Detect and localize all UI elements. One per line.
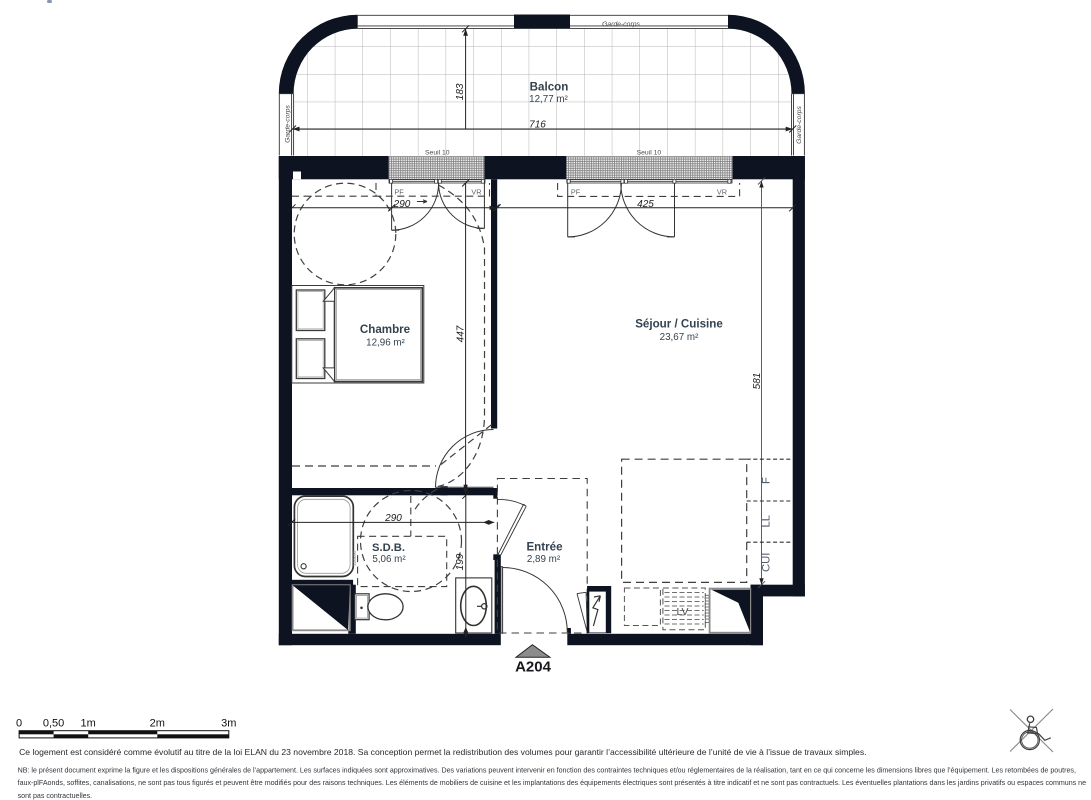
svg-text:Séjour / Cuisine: Séjour / Cuisine (635, 317, 723, 330)
svg-text:Balcon: Balcon (530, 81, 569, 94)
svg-text:183: 183 (455, 83, 466, 100)
svg-text:Garde-corps: Garde-corps (602, 21, 640, 28)
svg-text:faux-plFAonds, soffites, canal: faux-plFAonds, soffites, canalisations, … (18, 779, 1087, 787)
svg-text:120x90: 120x90 (352, 550, 357, 566)
svg-text:Entrée: Entrée (526, 540, 563, 553)
svg-text:0: 0 (16, 718, 22, 730)
svg-text:A204: A204 (515, 658, 552, 675)
svg-text:LV: LV (676, 606, 688, 618)
svg-text:447: 447 (455, 325, 466, 342)
svg-text:Ce logement est considéré comm: Ce logement est considéré comme évolutif… (19, 747, 866, 757)
svg-text:VR: VR (717, 188, 727, 197)
svg-text:199: 199 (455, 553, 466, 570)
svg-text:Garde-corps: Garde-corps (796, 106, 803, 144)
svg-text:Seuil 10: Seuil 10 (425, 150, 450, 157)
svg-text:12,77 m²: 12,77 m² (529, 94, 568, 105)
svg-text:716: 716 (529, 120, 546, 131)
svg-text:Garde-corps: Garde-corps (285, 105, 292, 143)
svg-text:NB: le présent document exprim: NB: le présent document exprime la figur… (18, 766, 1076, 774)
svg-text:LL: LL (761, 515, 773, 528)
svg-text:425: 425 (637, 199, 654, 210)
svg-text:2m: 2m (150, 718, 165, 730)
svg-text:CUI: CUI (761, 553, 773, 572)
svg-text:12,96 m²: 12,96 m² (366, 338, 405, 349)
svg-text:PF: PF (571, 188, 581, 197)
svg-text:290: 290 (393, 199, 411, 210)
svg-text:0,50: 0,50 (43, 718, 64, 730)
svg-text:F: F (761, 477, 773, 484)
svg-text:PF: PF (394, 188, 404, 197)
svg-text:VR: VR (471, 188, 481, 197)
svg-text:581: 581 (752, 373, 763, 390)
svg-text:S.D.B.: S.D.B. (372, 542, 405, 554)
svg-text:3m: 3m (221, 718, 236, 730)
svg-text:23,67 m²: 23,67 m² (660, 332, 699, 343)
svg-text:Seuil 10: Seuil 10 (637, 150, 662, 157)
svg-text:2,89 m²: 2,89 m² (527, 554, 561, 565)
svg-text:1m: 1m (81, 718, 96, 730)
svg-text:5,06 m²: 5,06 m² (372, 554, 406, 565)
svg-text:sont pas contractuelles.: sont pas contractuelles. (18, 792, 93, 800)
svg-text:290: 290 (384, 513, 402, 524)
svg-text:Chambre: Chambre (360, 323, 411, 336)
